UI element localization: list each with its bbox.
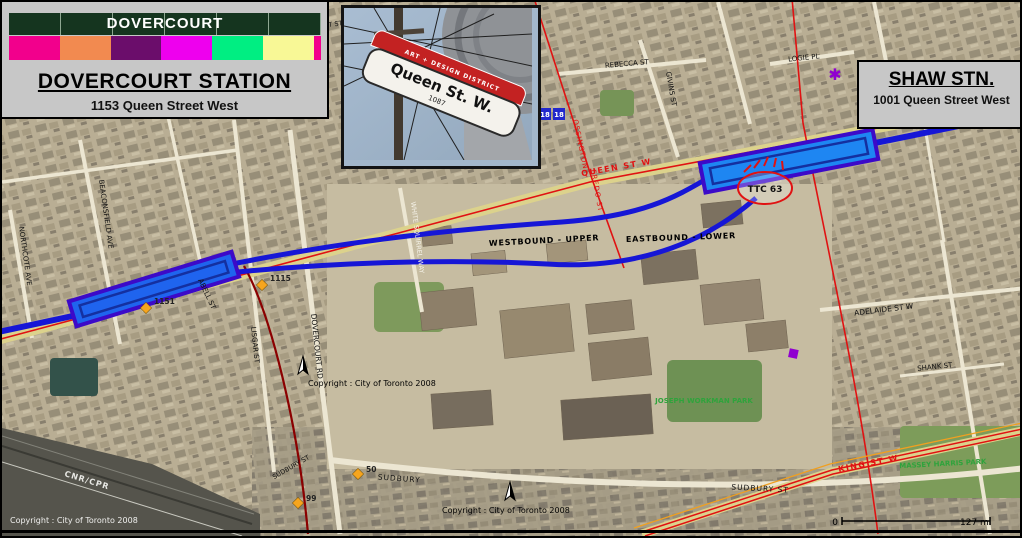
badge-18-a: 18 xyxy=(540,111,550,119)
legend-title: DOVERCOURT xyxy=(9,13,321,35)
purple-square-icon xyxy=(788,348,799,359)
map-screenshot: TTC 63 1151 1115 50 99 18 18 ✱ xyxy=(0,0,1022,538)
legend-swatch-magenta xyxy=(161,36,212,60)
legend-color-swatches xyxy=(9,36,321,60)
dovercourt-station-title: DOVERCOURT STATION xyxy=(2,70,327,94)
shaw-station-address: 1001 Queen Street West xyxy=(859,93,1022,107)
street-sign-photo: ART + DESIGN DISTRICT Queen St. W. 1087 xyxy=(344,8,532,160)
pond xyxy=(50,358,98,396)
legend-swatch-purple xyxy=(111,36,162,60)
dovercourt-legend-panel: DOVERCOURT DOVERCOURT STATION 1153 Queen… xyxy=(2,2,329,119)
badge-18-b: 18 xyxy=(554,111,564,119)
scale-start: 0 xyxy=(832,518,838,528)
legend-header-bar: DOVERCOURT xyxy=(9,13,321,35)
joseph-workman-park-area xyxy=(667,360,762,422)
purple-star-icon: ✱ xyxy=(828,65,841,84)
legend-swatch-sliver xyxy=(314,36,321,60)
street-sign-photo-inset: ART + DESIGN DISTRICT Queen St. W. 1087 xyxy=(341,5,541,169)
marker-label-1115: 1115 xyxy=(270,274,291,283)
legend-swatch-orange xyxy=(60,36,111,60)
lawn xyxy=(600,90,634,116)
ttc-63-label: TTC 63 xyxy=(748,185,783,195)
legend-swatch-green xyxy=(212,36,263,60)
joseph-workman-park-label: JOSEPH WORKMAN PARK xyxy=(654,397,753,405)
marker-label-1151: 1151 xyxy=(154,297,175,306)
scale-end: 127 m xyxy=(960,518,989,528)
shaw-station-title: SHAW STN. xyxy=(859,69,1022,91)
dovercourt-station-address: 1153 Queen Street West xyxy=(2,98,327,113)
copyright-text-left: Copyright : City of Toronto 2008 xyxy=(308,379,436,388)
map-bottom-frame xyxy=(2,530,1022,533)
copyright-text-corner: Copyright : City of Toronto 2008 xyxy=(10,516,138,525)
marker-label-50: 50 xyxy=(366,465,376,474)
marker-label-99: 99 xyxy=(306,494,316,503)
legend-swatch-pink xyxy=(9,36,60,60)
shaw-station-panel: SHAW STN. 1001 Queen Street West xyxy=(857,60,1022,129)
copyright-text-center: Copyright : City of Toronto 2008 xyxy=(442,506,570,515)
legend-swatch-yellow xyxy=(263,36,314,60)
